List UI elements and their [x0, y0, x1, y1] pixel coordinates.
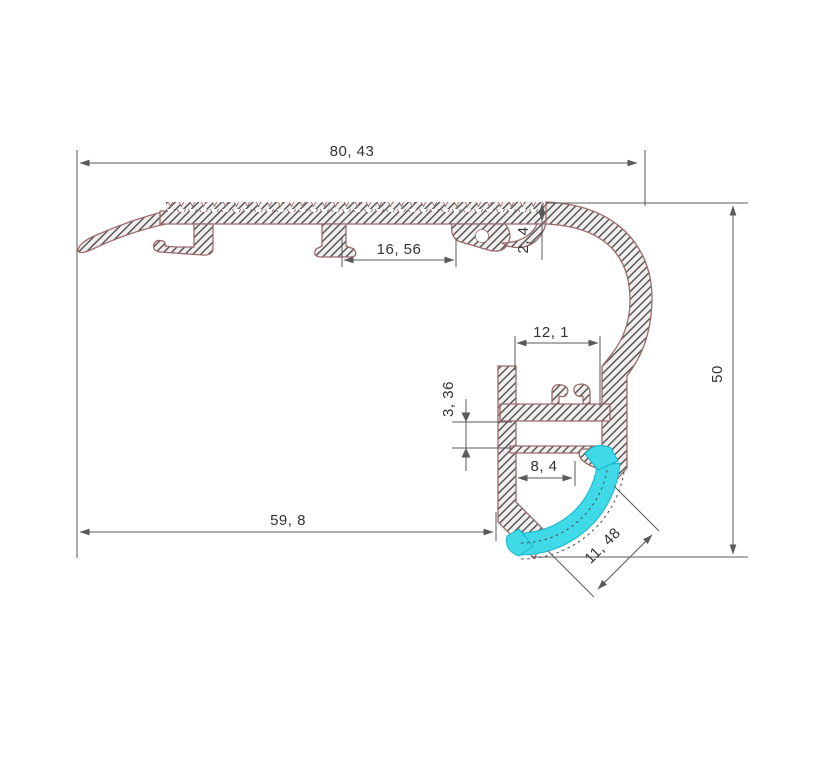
- profile-drawing: 80, 43 16, 56 2, 4 50 59, 8 12, 1 3, 36 …: [0, 0, 816, 765]
- dimension-left-section: 59, 8: [80, 512, 493, 532]
- pcb-slot-arrow-bottom: [462, 448, 471, 458]
- dimension-top-slot-label: 16, 56: [377, 241, 422, 258]
- serration-notches: [166, 202, 546, 212]
- dimension-left-section-label: 59, 8: [270, 512, 306, 529]
- dimension-pcb-slot-label: 3, 36: [440, 381, 457, 417]
- dimension-overall-width-label: 80, 43: [330, 143, 375, 160]
- left-nose-shape: [78, 211, 166, 252]
- drawing-canvas: 80, 43 16, 56 2, 4 50 59, 8 12, 1 3, 36 …: [0, 0, 816, 765]
- dimension-tread-thickness-label: 2, 4: [515, 226, 532, 253]
- left-foot-shape: [154, 224, 213, 255]
- screw-hole: [476, 230, 489, 243]
- dimension-top-slot: 16, 56: [344, 241, 454, 260]
- clip-right-shape: [574, 384, 590, 404]
- dimension-lens-inset-label: 8, 4: [530, 458, 557, 475]
- clip-left-shape: [552, 385, 568, 404]
- dimension-overall-height-label: 50: [709, 365, 726, 383]
- dimension-lens-arc-label: 11, 48: [581, 524, 624, 567]
- dimension-overall-height: 50: [709, 206, 733, 554]
- dimension-pcb-slot: 3, 36: [440, 381, 471, 471]
- dimension-channel-width-label: 12, 1: [533, 324, 569, 341]
- middle-foot-shape: [315, 224, 356, 257]
- dimension-overall-width: 80, 43: [80, 143, 637, 163]
- dimension-channel-width: 12, 1: [517, 324, 598, 343]
- ext-diag-upper: [614, 486, 659, 531]
- pcb-shelf-shape: [500, 404, 610, 421]
- profile-section: [78, 202, 652, 558]
- dimension-lens-inset: 8, 4: [518, 458, 572, 478]
- pcb-slot-arrow-top: [462, 413, 471, 423]
